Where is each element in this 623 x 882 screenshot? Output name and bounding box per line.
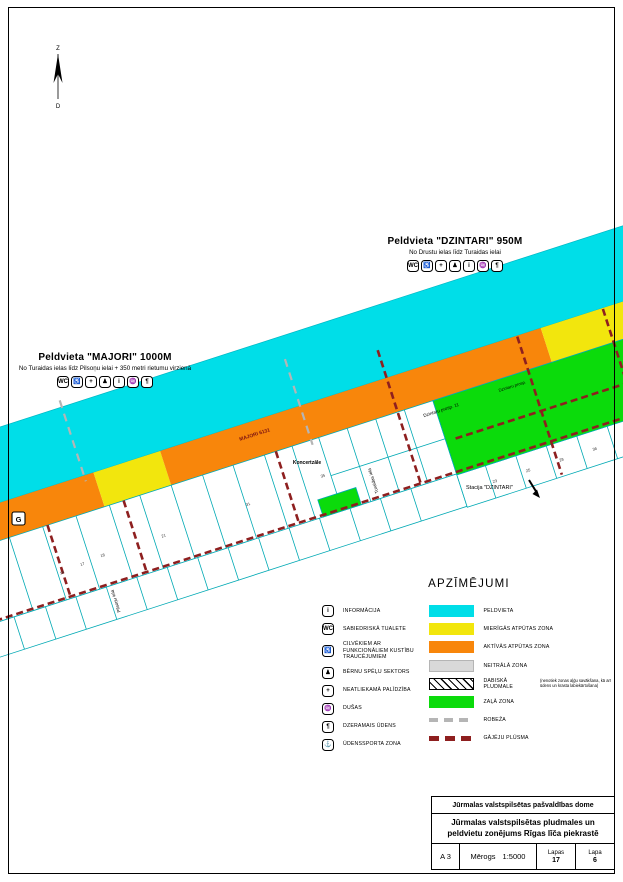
first-aid-icon: + — [85, 376, 97, 388]
legend-label: DUŠAS — [343, 705, 362, 712]
legend-item-drinking-water: ¶ DZERAMAIS ŪDENS — [322, 721, 424, 733]
legend-label: AKTĪVĀS ATPŪTAS ZONA — [483, 644, 549, 650]
beach-title: Peldvieta "DZINTARI" 950M — [330, 236, 580, 247]
legend-item-boundary: ROBEŽA — [429, 714, 616, 726]
legend-label: CILVĒKIEM AR FUNKCIONĀLIEM KUSTĪBU TRAUC… — [343, 641, 424, 661]
station-arrowhead-icon — [533, 490, 541, 499]
legend: APZĪMĒJUMI i INFORMĀCIJA WC SABIEDRISKĀ … — [322, 578, 616, 751]
station-label: Stacija "DZINTARI" — [466, 485, 513, 491]
scale-cell: Mērogs 1:5000 — [460, 844, 537, 869]
info-icon: i — [113, 376, 125, 388]
svg-text:G: G — [16, 515, 22, 524]
facility-icon-row: WC ♿ + ♟ i ♒ ¶ — [330, 260, 580, 272]
legend-label: MIERĪGĀS ATPŪTAS ZONA — [483, 626, 553, 632]
sheet-format: A 3 — [432, 844, 460, 869]
legend-item-playground: ♟ BĒRNU SPĒĻU SEKTORS — [322, 667, 424, 679]
quiet-zone-swatch — [429, 623, 474, 635]
beach-title: Peldvieta "MAJORI" 1000M — [15, 352, 195, 363]
watersport-icon: ⚓ — [322, 739, 334, 751]
playground-icon: ♟ — [322, 667, 334, 679]
plan-sheet: MAJORI 6131 Dzintaru prosp. 11 Dzintaru … — [0, 0, 623, 882]
legend-item-shower: ♒ DUŠAS — [322, 703, 424, 715]
legend-label: ŪDENSSPORTA ZONA — [343, 741, 401, 748]
legend-label: NEATLIEKAMĀ PALĪDZĪBA — [343, 687, 411, 694]
info-icon: i — [322, 605, 334, 617]
legend-item-first-aid: + NEATLIEKAMĀ PALĪDZĪBA — [322, 685, 424, 697]
page-value: 6 — [593, 857, 597, 864]
beach-subtitle: No Drustu ielas līdz Turaidas ielai — [330, 249, 580, 256]
legend-item-active-zone: AKTĪVĀS ATPŪTAS ZONA — [429, 641, 616, 653]
facility-icon-row: WC ♿ + ♟ i ♒ ¶ — [15, 376, 195, 388]
organization-name: Jūrmalas valstspilsētas pašvaldības dome — [432, 797, 614, 814]
legend-note: (nenotiek zonas aļģu savākšana, kā arī ū… — [540, 679, 616, 689]
legend-facilities: i INFORMĀCIJA WC SABIEDRISKĀ TUALETE ♿ C… — [322, 605, 424, 751]
shower-icon: ♒ — [322, 703, 334, 715]
boundary-swatch — [429, 718, 474, 722]
legend-label: GĀJĒJU PLŪSMA — [483, 735, 528, 741]
legend-zones: PELDVIETA MIERĪGĀS ATPŪTAS ZONA AKTĪVĀS … — [424, 605, 616, 751]
legend-item-neutral-zone: NEITRĀLĀ ZONA — [429, 660, 616, 672]
info-icon: i — [463, 260, 475, 272]
legend-item-green-zone: ZAĻĀ ZONA — [429, 696, 616, 708]
north-arrow: Z D — [54, 46, 63, 110]
scale-value: 1:5000 — [503, 852, 526, 861]
shower-icon: ♒ — [127, 376, 139, 388]
legend-label: NEITRĀLĀ ZONA — [483, 663, 527, 669]
beach-subtitle: No Turaidas ielas līdz Pilsoņu ielai + 3… — [15, 365, 195, 372]
shower-icon: ♒ — [477, 260, 489, 272]
beach-header-majori: Peldvieta "MAJORI" 1000M No Turaidas iel… — [15, 352, 195, 388]
legend-item-info: i INFORMĀCIJA — [322, 605, 424, 617]
legend-item-beach: PELDVIETA — [429, 605, 616, 617]
zoning-map: MAJORI 6131 Dzintaru prosp. 11 Dzintaru … — [0, 0, 623, 662]
active-zone-swatch — [429, 641, 474, 653]
wheelchair-icon: ♿ — [421, 260, 433, 272]
pages-label: Lapas — [548, 850, 564, 856]
first-aid-icon: + — [435, 260, 447, 272]
legend-label: BĒRNU SPĒĻU SEKTORS — [343, 669, 410, 676]
legend-item-natural-beach: DABISKĀ PLUDMALE (nenotiek zonas aļģu sa… — [429, 678, 616, 690]
wheelchair-icon: ♿ — [322, 645, 334, 657]
drawing-title: Jūrmalas valstspilsētas pludmales un pel… — [432, 814, 614, 844]
drinking-water-icon: ¶ — [322, 721, 334, 733]
wc-icon: WC — [407, 260, 419, 272]
title-block: Jūrmalas valstspilsētas pašvaldības dome… — [431, 796, 615, 870]
natural-beach-swatch — [429, 678, 474, 690]
legend-label: ROBEŽA — [483, 717, 506, 723]
legend-label: INFORMĀCIJA — [343, 608, 380, 615]
drinking-water-icon: ¶ — [491, 260, 503, 272]
legend-title: APZĪMĒJUMI — [322, 578, 616, 590]
legend-item-wheelchair: ♿ CILVĒKIEM AR FUNKCIONĀLIEM KUSTĪBU TRA… — [322, 641, 424, 661]
legend-item-quiet-zone: MIERĪGĀS ATPŪTAS ZONA — [429, 623, 616, 635]
koncertzale-label: Koncertzāle — [293, 460, 322, 466]
legend-label: DABISKĀ PLUDMALE — [483, 678, 529, 690]
playground-icon: ♟ — [99, 376, 111, 388]
legend-item-pedestrian-flow: GĀJĒJU PLŪSMA — [429, 732, 616, 744]
scale-label: Mērogs — [471, 852, 496, 861]
first-aid-icon: + — [322, 685, 334, 697]
legend-item-wc: WC SABIEDRISKĀ TUALETE — [322, 623, 424, 635]
svg-text:D: D — [56, 104, 61, 110]
page-cell: Lapa 6 — [576, 844, 614, 869]
neutral-zone-swatch — [429, 660, 474, 672]
pedestrian-flow-swatch — [429, 736, 474, 741]
legend-label: ZAĻĀ ZONA — [483, 699, 514, 705]
svg-text:Z: Z — [56, 46, 60, 52]
wc-icon: WC — [57, 376, 69, 388]
drinking-water-icon: ¶ — [141, 376, 153, 388]
playground-icon: ♟ — [449, 260, 461, 272]
pages-cell: Lapas 17 — [537, 844, 576, 869]
legend-label: SABIEDRISKĀ TUALETE — [343, 626, 406, 633]
legend-item-watersport: ⚓ ŪDENSSPORTA ZONA — [322, 739, 424, 751]
pages-value: 17 — [552, 857, 560, 864]
beach-header-dzintari: Peldvieta "DZINTARI" 950M No Drustu iela… — [330, 236, 580, 272]
g-marker: G — [12, 512, 25, 525]
legend-label: DZERAMAIS ŪDENS — [343, 723, 396, 730]
wc-icon: WC — [322, 623, 334, 635]
beach-zone-swatch — [429, 605, 474, 617]
legend-label: PELDVIETA — [483, 608, 513, 614]
green-zone-swatch — [429, 696, 474, 708]
wheelchair-icon: ♿ — [71, 376, 83, 388]
page-label: Lapa — [588, 850, 601, 856]
